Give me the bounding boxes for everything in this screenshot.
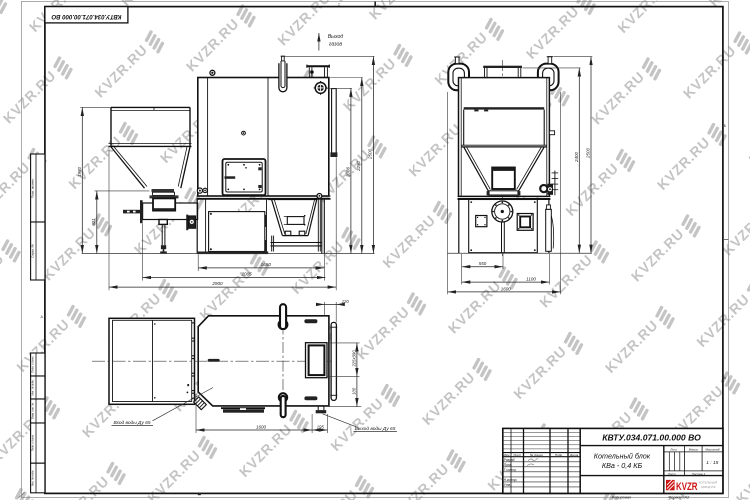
svg-text:2005: 2005 [240,272,252,277]
svg-text:Листов 1: Листов 1 [691,472,706,476]
svg-text:KVZR.RU: KVZR.RU [236,421,295,480]
svg-text:1650: 1650 [261,262,272,267]
svg-text:KVZR.RU: KVZR.RU [288,238,347,297]
svg-text:1600: 1600 [501,287,512,292]
svg-text:KVZR.RU: KVZR.RU [719,199,750,258]
svg-text:Изм.: Изм. [504,453,511,457]
svg-text:KVZR.RU: KVZR.RU [562,160,621,219]
svg-text:1980: 1980 [77,166,82,177]
svg-text:2: 2 [338,3,340,7]
svg-text:Формат А2: Формат А2 [668,496,690,500]
svg-text:225х390: 225х390 [351,350,356,368]
svg-text:№ докум.: № докум. [530,453,544,457]
svg-text:Утв.: Утв. [504,483,511,487]
svg-text:2900: 2900 [211,281,223,286]
svg-text:Масштаб: Масштаб [705,447,719,451]
svg-text:1600: 1600 [256,424,267,429]
svg-text:KVZR.RU: KVZR.RU [536,251,595,310]
svg-text:ЗАВОД РФ: ЗАВОД РФ [701,485,716,489]
svg-text:Подп. и дата: Подп. и дата [31,356,35,373]
svg-text:KVZR.RU: KVZR.RU [353,303,412,362]
svg-text:KVZR.RU: KVZR.RU [183,15,242,74]
svg-text:Инв. № дубл.: Инв. № дубл. [31,379,35,395]
svg-text:KVZR.RU: KVZR.RU [445,277,504,336]
svg-text:KVZR.RU: KVZR.RU [745,108,750,167]
svg-text:Лит.: Лит. [669,447,677,451]
svg-text:2500: 2500 [585,147,590,159]
svg-text:KVZR.RU: KVZR.RU [588,68,647,127]
svg-text:100: 100 [352,387,357,395]
svg-text:Котельный блок: Котельный блок [594,451,651,460]
svg-text:Разраб.: Разраб. [504,458,516,462]
svg-text:KVZR.RU: KVZR.RU [405,120,464,179]
svg-text:КВТУ.034.071.00.000 ВО: КВТУ.034.071.00.000 ВО [602,433,701,443]
svg-text:Лист: Лист [667,472,676,476]
svg-text:КВа - 0,4 КБ: КВа - 0,4 КБ [602,461,643,470]
svg-text:KVZR.RU: KVZR.RU [654,134,713,193]
svg-text:KVZR.RU: KVZR.RU [144,447,203,500]
svg-text:Т.контр.: Т.контр. [504,468,517,472]
svg-text:KVZR.RU: KVZR.RU [65,133,124,192]
svg-text:Подп. и дата: Подп. и дата [31,434,35,451]
svg-text:550: 550 [479,261,487,266]
svg-text:KVZR.RU: KVZR.RU [523,3,582,62]
svg-text:KVZR.RU: KVZR.RU [0,159,33,218]
svg-text:газов: газов [329,42,343,48]
svg-text:KVZR.RU: KVZR.RU [0,250,7,309]
svg-text:Н.контр.: Н.контр. [504,478,518,482]
svg-text:KVZR.RU: KVZR.RU [91,41,150,100]
svg-text:Вход воды Ду 65: Вход воды Ду 65 [113,420,150,426]
svg-text:KVZR.RU: KVZR.RU [0,67,59,126]
svg-text:Инв. № подл.: Инв. № подл. [31,470,35,486]
svg-text:KVZR.RU: KVZR.RU [602,317,661,376]
svg-text:120: 120 [342,299,350,304]
svg-text:1100: 1100 [526,276,536,281]
svg-text:КВТУ.034.071.00.000 ВО: КВТУ.034.071.00.000 ВО [51,13,121,20]
svg-text:KVZR.RU: KVZR.RU [680,42,739,101]
svg-text:2500: 2500 [368,148,373,160]
svg-text:821: 821 [91,218,96,226]
svg-text:KVZR.RU: KVZR.RU [628,225,687,284]
svg-text:Дата: Дата [569,453,578,457]
svg-text:Пров.: Пров. [504,463,513,467]
svg-text:Лист: Лист [512,453,521,457]
svg-text:KVZR.RU: KVZR.RU [419,369,478,428]
svg-text:KVZR.RU: KVZR.RU [510,343,569,402]
svg-text:Б: Б [724,124,727,128]
svg-text:Справ. №: Справ. № [31,243,35,257]
svg-text:KVZR.RU: KVZR.RU [693,291,750,350]
svg-text:KVZR: KVZR [676,481,698,493]
svg-text:KVZR.RU: KVZR.RU [340,55,399,114]
svg-text:Выход: Выход [328,34,344,40]
svg-text:Взам. инв. №: Взам. инв. № [31,403,35,419]
svg-text:KVZR.RU: KVZR.RU [53,473,112,500]
svg-text:KVZR.RU: KVZR.RU [614,0,673,36]
svg-text:2400: 2400 [574,151,579,163]
svg-text:2086: 2086 [345,166,350,178]
svg-text:1 : 15: 1 : 15 [706,460,718,466]
svg-text:KVZR.RU: KVZR.RU [733,448,750,500]
svg-text:Копировал: Копировал [612,496,632,500]
svg-text:195: 195 [317,425,325,430]
svg-text:Перв. примен.: Перв. примен. [31,178,35,198]
svg-text:2250: 2250 [356,160,361,172]
svg-text:Подп.: Подп. [555,453,563,457]
svg-text:Масса: Масса [689,447,698,451]
svg-text:А: А [41,315,44,319]
svg-text:KVZR.RU: KVZR.RU [379,212,438,271]
